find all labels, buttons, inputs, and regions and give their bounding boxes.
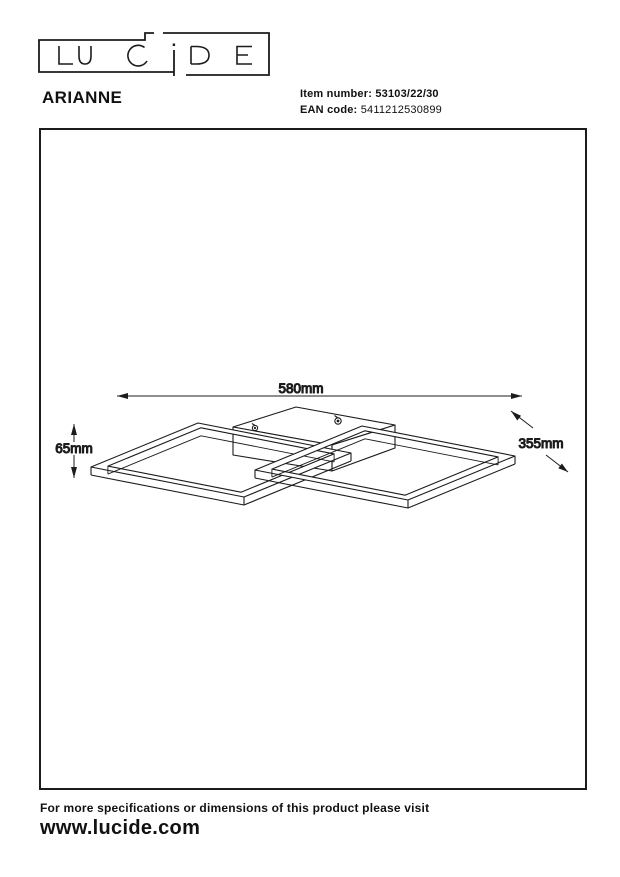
item-number-value: 53103/22/30	[375, 88, 438, 100]
spec-sheet-page: LUCIDE ARIANNE Item number: 53103/	[0, 0, 620, 877]
item-number-label: Item number:	[300, 88, 372, 100]
page-title: ARIANNE	[42, 88, 122, 108]
lucide-logo: LUCIDE	[38, 30, 270, 78]
dimension-width-label: 580mm	[278, 381, 323, 396]
website-link[interactable]: www.lucide.com	[40, 817, 200, 840]
logo-border	[39, 33, 269, 76]
dimension-drawing: 580mm 65mm 355mm	[41, 130, 585, 788]
drawing-border-box: 580mm 65mm 355mm	[39, 128, 587, 790]
dimension-depth-label: 355mm	[518, 436, 563, 451]
ean-code-value: 5411212530899	[361, 104, 442, 116]
item-info-block: Item number: 53103/22/30 EAN code: 54112…	[300, 86, 442, 118]
ean-code-row: EAN code: 5411212530899	[300, 102, 442, 118]
dimension-height-label: 65mm	[55, 441, 93, 456]
footer-note: For more specifications or dimensions of…	[40, 801, 429, 815]
logo-letters	[59, 44, 252, 66]
item-number-row: Item number: 53103/22/30	[300, 86, 442, 102]
ean-code-label: EAN code:	[300, 104, 357, 116]
